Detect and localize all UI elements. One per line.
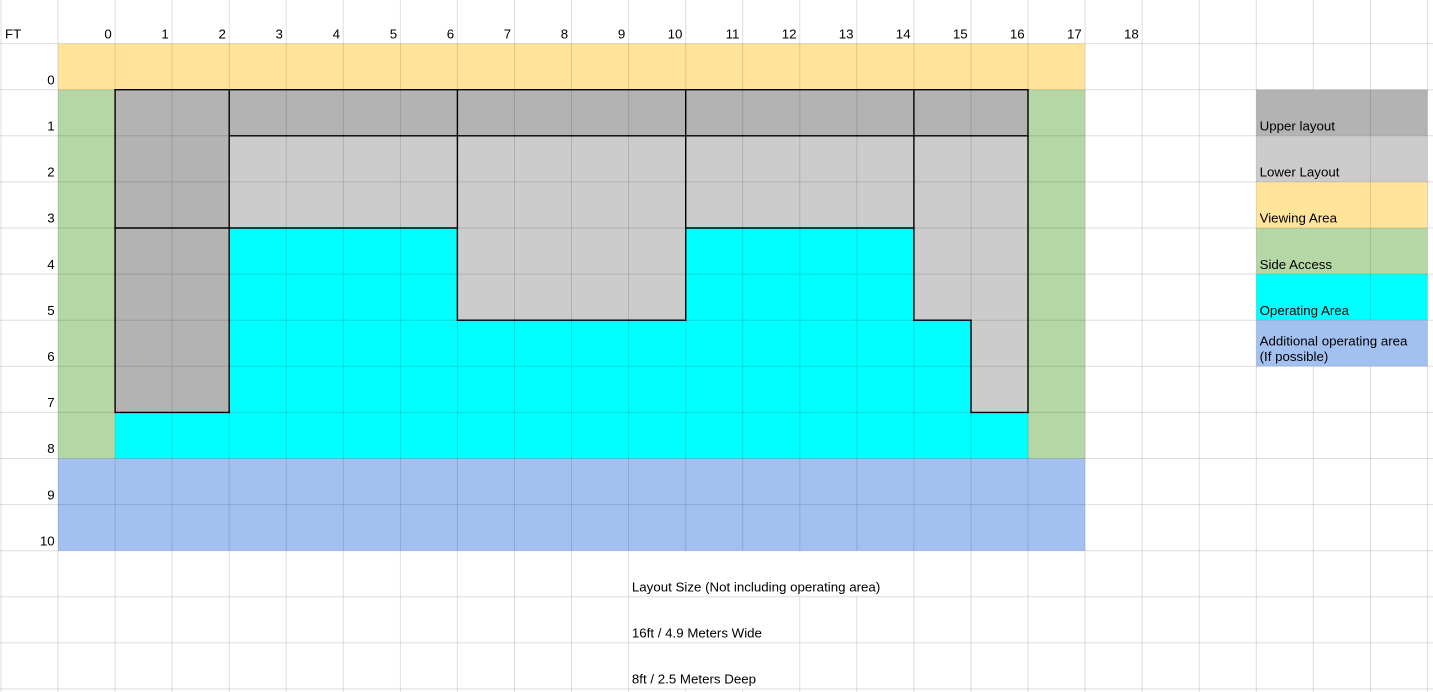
svg-text:Layout Size (Not including ope: Layout Size (Not including operating are…	[632, 580, 880, 595]
svg-text:9: 9	[47, 487, 54, 502]
svg-text:11: 11	[726, 26, 740, 41]
svg-text:4: 4	[333, 26, 340, 41]
svg-text:10: 10	[668, 26, 683, 41]
svg-text:7: 7	[47, 395, 54, 410]
svg-text:8: 8	[47, 441, 54, 456]
svg-text:Additional operating area: Additional operating area	[1260, 334, 1408, 349]
svg-text:5: 5	[47, 303, 54, 318]
svg-text:2: 2	[47, 165, 54, 180]
svg-text:3: 3	[47, 211, 54, 226]
svg-text:Lower Layout: Lower Layout	[1260, 165, 1340, 180]
svg-text:9: 9	[618, 26, 625, 41]
svg-text:0: 0	[47, 72, 54, 87]
svg-text:(If possible): (If possible)	[1260, 349, 1329, 364]
svg-text:0: 0	[104, 26, 111, 41]
svg-text:1: 1	[161, 26, 168, 41]
svg-text:FT: FT	[5, 26, 21, 41]
svg-text:15: 15	[953, 26, 968, 41]
svg-text:12: 12	[782, 26, 797, 41]
svg-text:Viewing Area: Viewing Area	[1260, 211, 1338, 226]
svg-text:8ft / 2.5 Meters Deep: 8ft / 2.5 Meters Deep	[632, 672, 756, 687]
svg-text:4: 4	[47, 257, 54, 272]
svg-text:17: 17	[1067, 26, 1082, 41]
svg-text:6: 6	[47, 349, 54, 364]
svg-text:10: 10	[40, 533, 55, 548]
svg-text:Upper layout: Upper layout	[1260, 119, 1336, 134]
svg-text:5: 5	[390, 26, 397, 41]
svg-text:8: 8	[561, 26, 568, 41]
svg-text:3: 3	[275, 26, 282, 41]
svg-text:1: 1	[47, 119, 54, 134]
svg-text:16ft / 4.9 Meters Wide: 16ft / 4.9 Meters Wide	[632, 626, 762, 641]
svg-text:13: 13	[839, 26, 854, 41]
svg-text:18: 18	[1124, 26, 1139, 41]
svg-text:Operating Area: Operating Area	[1260, 303, 1350, 318]
svg-text:14: 14	[896, 26, 911, 41]
svg-text:6: 6	[447, 26, 454, 41]
svg-text:7: 7	[504, 26, 511, 41]
svg-text:2: 2	[218, 26, 225, 41]
svg-text:16: 16	[1010, 26, 1025, 41]
svg-text:Side Access: Side Access	[1260, 257, 1333, 272]
